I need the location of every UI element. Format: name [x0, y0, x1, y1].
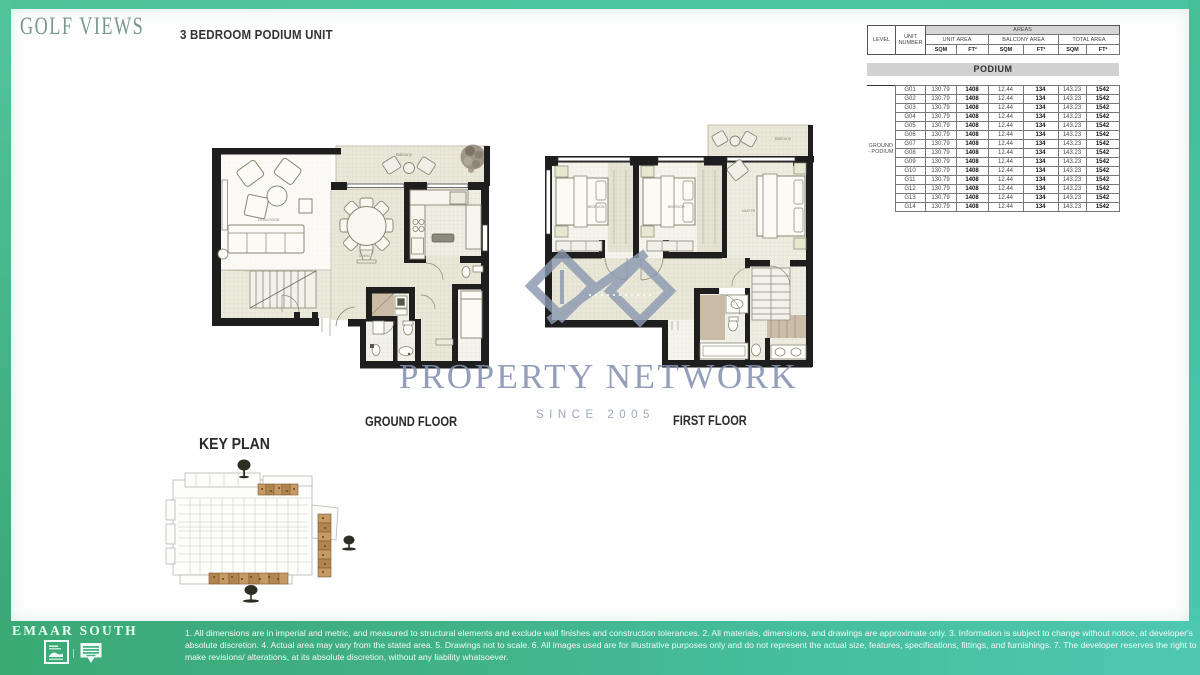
svg-text:DINING: DINING — [359, 254, 371, 258]
svg-text:Balcony: Balcony — [396, 152, 413, 157]
svg-text:Balcony: Balcony — [775, 136, 792, 141]
svg-text:BEDROOM: BEDROOM — [588, 205, 605, 209]
svg-text:MASTER: MASTER — [742, 209, 756, 213]
svg-text:LIVING ROOM: LIVING ROOM — [258, 218, 280, 222]
svg-text:BEDROOM: BEDROOM — [668, 205, 685, 209]
